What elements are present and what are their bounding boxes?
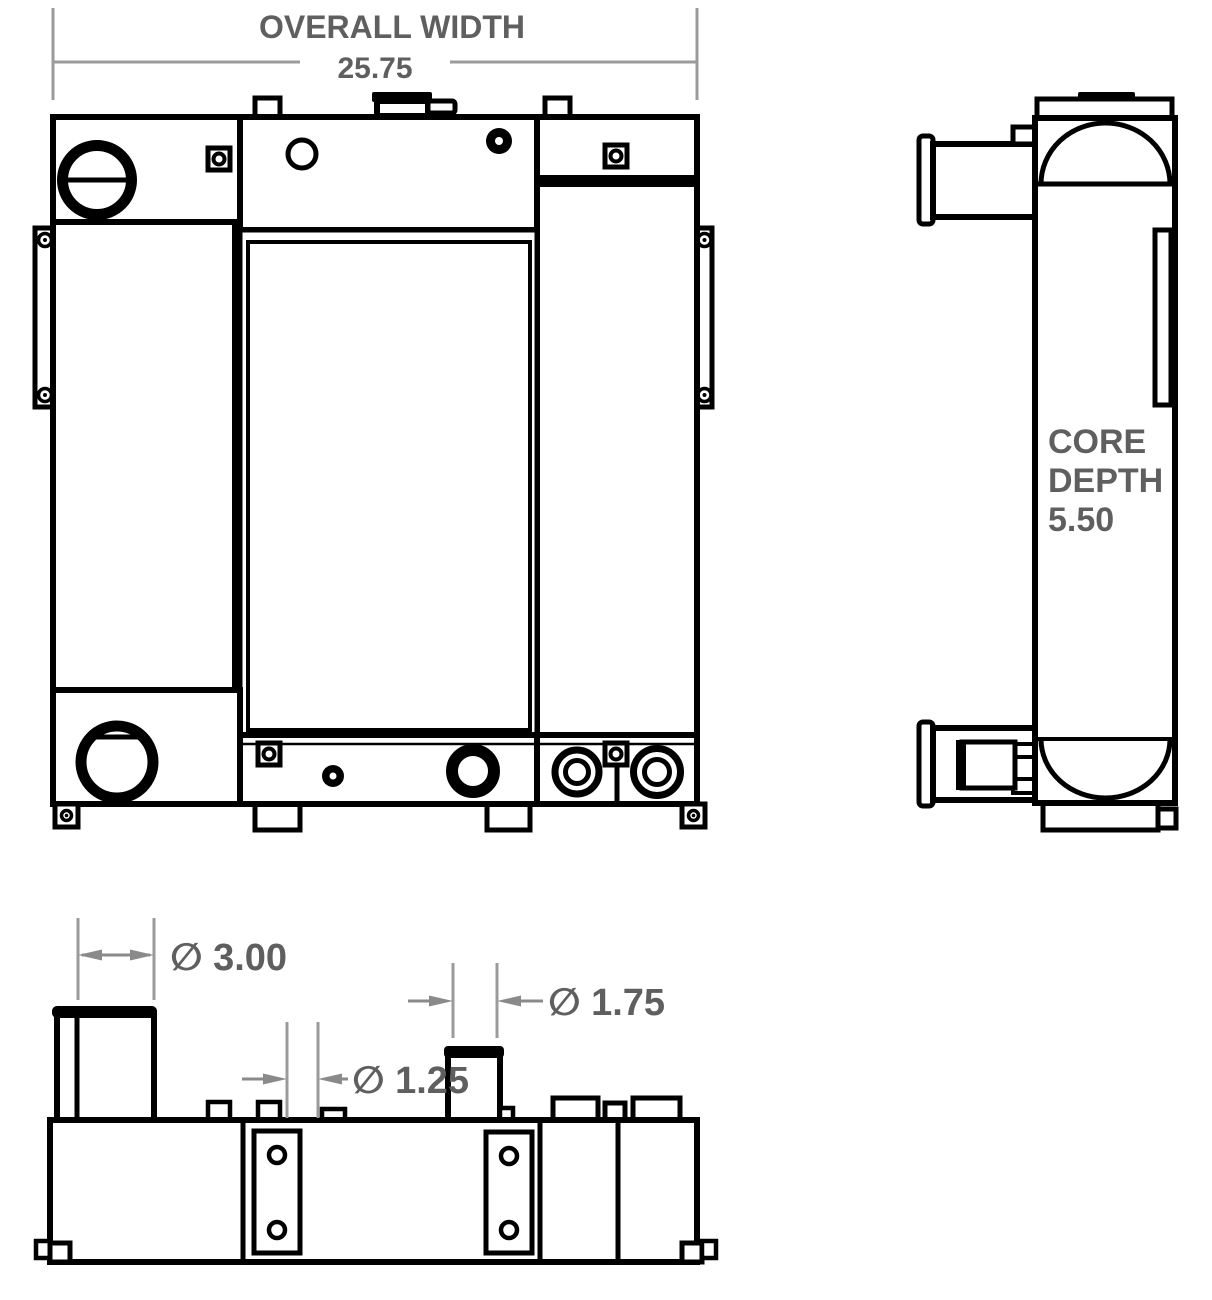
pipe-3-00-body [57,1013,154,1120]
core-inner [248,242,530,730]
dim-overall-width: OVERALL WIDTH 25.75 [53,8,697,100]
pipe-3-00-bead [52,1006,157,1018]
front-view [35,92,712,830]
core-depth-line2: DEPTH [1048,462,1163,500]
bottom-foot-right [682,1241,716,1262]
sensor-boss-center [495,137,503,145]
side-foot-step [1158,809,1176,828]
corner-foot-bolt-right [682,804,705,827]
dim-diameter-1-75: ∅ 1.75 [408,963,665,1038]
pipe-1-75-bead [444,1046,504,1058]
pipe-3-00 [52,1006,157,1120]
corner-foot-bolt-left [55,804,78,827]
bolt-plate-left [254,1131,300,1253]
right-tank-column [537,184,697,735]
bolt-boss-bottom-center [258,743,280,765]
foot-tab-center-right [487,803,530,830]
top-tank-sensor-boss [486,128,512,154]
diameter-1-75-value: ∅ 1.75 [548,982,665,1024]
side-foot [1043,803,1176,830]
side-bottom-pipe [919,722,1035,806]
overall-width-label: OVERALL WIDTH [259,9,525,45]
diameter-3-00-value: ∅ 3.00 [170,937,287,979]
core-depth-line3: 5.50 [1048,501,1114,539]
side-foot-base [1043,803,1158,830]
dim-diameter-3-00: ∅ 3.00 [78,918,287,1000]
drawing-canvas: OVERALL WIDTH 25.75 [0,0,1212,1300]
bolt-plate-right [486,1132,532,1253]
bottom-pipe-inner-edge [956,740,966,790]
bottom-pipe-inner [962,742,1015,788]
bottom-body [50,1120,697,1262]
bottom-drain-boss [322,765,344,787]
filler-cap-body [377,101,428,116]
side-top-pipe [919,127,1035,224]
radiator-technical-drawing: OVERALL WIDTH 25.75 [0,0,1212,1300]
bolt-boss-top-right [605,145,627,167]
bolt-boss-bottom-right [605,743,627,765]
core-depth-line1: CORE [1048,423,1146,461]
bottom-foot-left [36,1241,70,1262]
left-tank-column [53,222,235,690]
top-pipe-body [933,144,1035,217]
top-pipe-step [1013,127,1035,144]
side-bracket-strip [1155,230,1171,405]
diameter-1-25-value: ∅ 1.25 [352,1060,469,1102]
drain-boss-center [330,773,337,780]
bottom-view: ∅ 3.00 ∅ 1.25 ∅ 1.75 [36,918,716,1262]
filler-cap-nozzle [428,101,455,113]
overall-width-value: 25.75 [337,52,412,85]
bolt-boss-top-left [208,148,230,170]
foot-tab-center-left [255,803,300,830]
side-view: CORE DEPTH 5.50 [919,92,1176,830]
filler-cap [372,92,455,116]
